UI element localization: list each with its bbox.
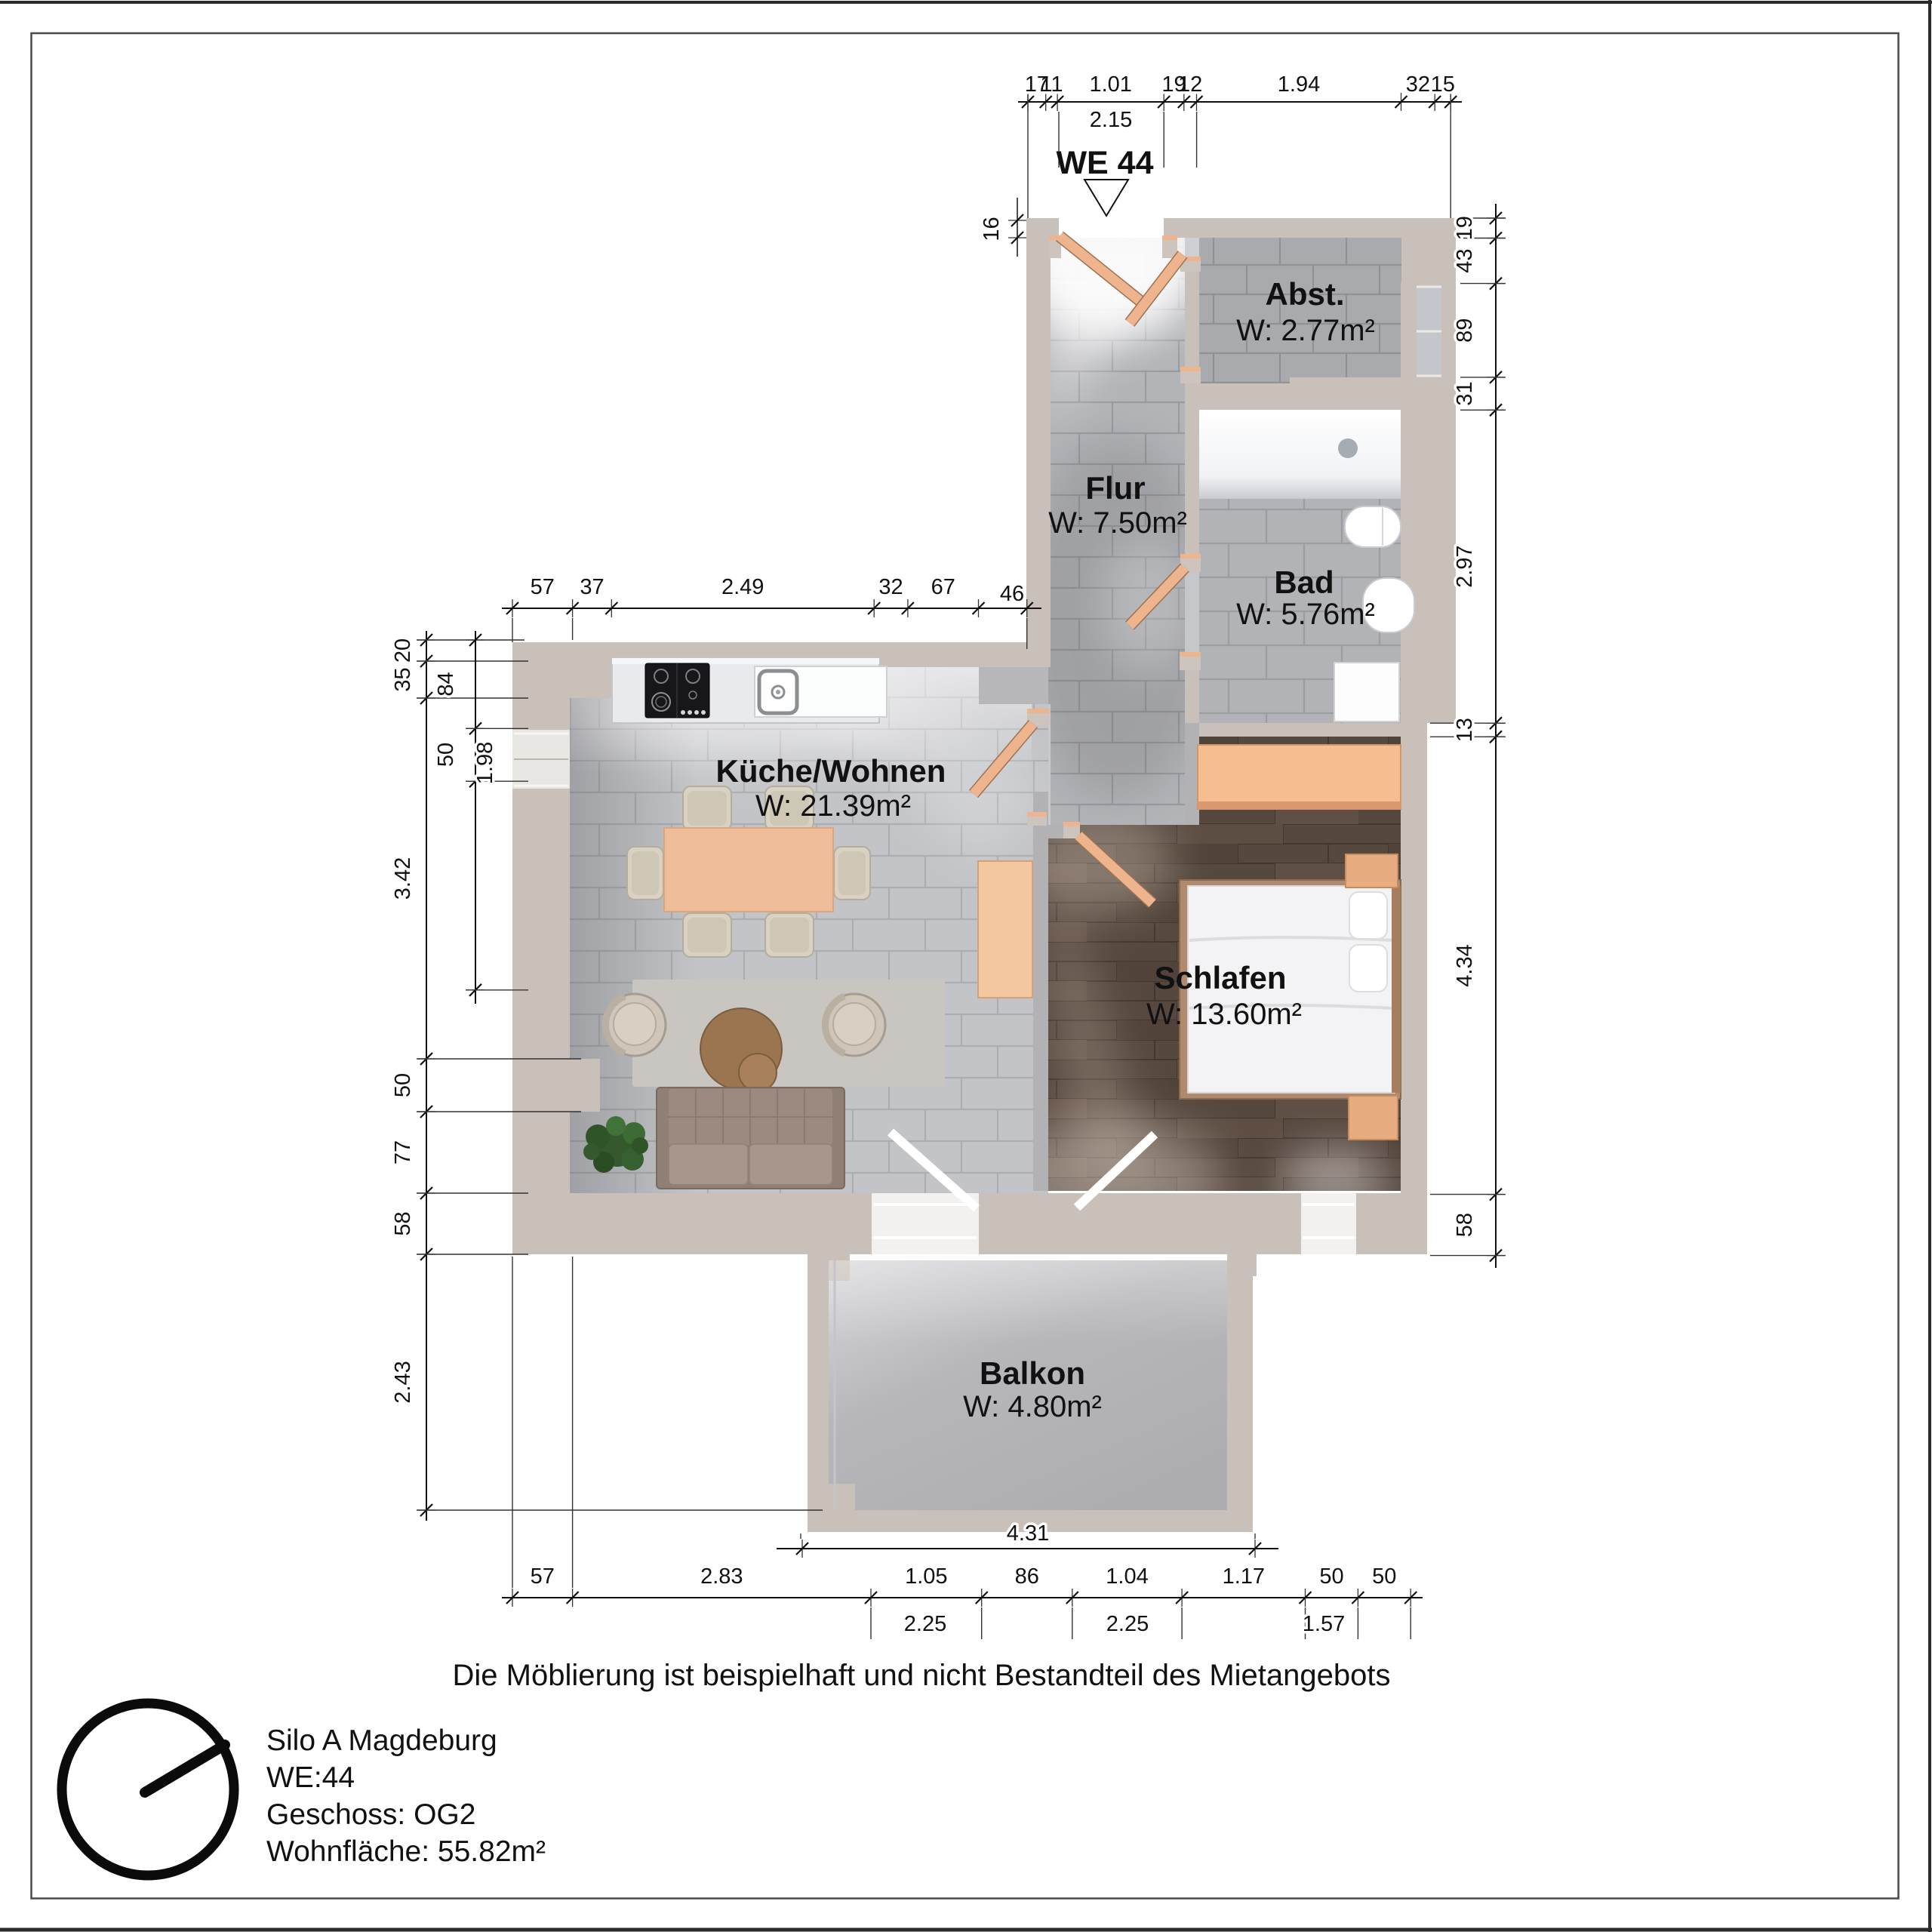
svg-text:2.43: 2.43	[391, 1361, 415, 1403]
svg-text:W: 2.77m²: W: 2.77m²	[1236, 314, 1375, 347]
svg-text:W: 21.39m²: W: 21.39m²	[755, 789, 911, 823]
svg-text:16: 16	[980, 217, 1004, 241]
svg-text:4.31: 4.31	[1007, 1521, 1049, 1546]
svg-text:67: 67	[931, 575, 955, 599]
svg-text:3.42: 3.42	[391, 857, 415, 900]
svg-text:W: 7.50m²: W: 7.50m²	[1048, 506, 1187, 540]
svg-text:86: 86	[1015, 1564, 1039, 1589]
svg-text:Wohnfläche: 55.82m²: Wohnfläche: 55.82m²	[266, 1835, 546, 1868]
svg-text:Abst.: Abst.	[1266, 276, 1345, 312]
svg-text:58: 58	[1453, 1213, 1477, 1237]
svg-text:1.98: 1.98	[473, 742, 497, 784]
svg-text:1.04: 1.04	[1106, 1564, 1148, 1589]
svg-text:84: 84	[434, 672, 458, 696]
svg-text:Schlafen: Schlafen	[1154, 960, 1286, 995]
svg-text:19: 19	[1453, 216, 1477, 240]
svg-text:WE:44: WE:44	[266, 1761, 355, 1794]
svg-text:1.17: 1.17	[1223, 1564, 1265, 1589]
svg-text:Silo A Magdeburg: Silo A Magdeburg	[266, 1724, 497, 1757]
svg-text:57: 57	[531, 575, 555, 599]
svg-text:W: 4.80m²: W: 4.80m²	[963, 1390, 1102, 1423]
svg-text:1.05: 1.05	[905, 1564, 947, 1589]
svg-text:Die Möblierung ist beispielhaf: Die Möblierung ist beispielhaft und nich…	[453, 1659, 1391, 1692]
svg-text:2.83: 2.83	[700, 1564, 743, 1589]
svg-text:43: 43	[1453, 248, 1477, 272]
svg-text:W: 13.60m²: W: 13.60m²	[1146, 998, 1302, 1031]
svg-text:1.01: 1.01	[1089, 72, 1131, 97]
svg-text:57: 57	[531, 1564, 555, 1589]
svg-text:Küche/Wohnen: Küche/Wohnen	[716, 753, 946, 789]
svg-text:15: 15	[1431, 72, 1455, 97]
svg-text:50: 50	[434, 743, 458, 767]
svg-text:12: 12	[1178, 72, 1202, 97]
svg-text:35: 35	[391, 667, 415, 691]
svg-text:2.25: 2.25	[904, 1612, 946, 1636]
svg-text:W: 5.76m²: W: 5.76m²	[1236, 598, 1375, 631]
svg-text:2.49: 2.49	[721, 575, 764, 599]
svg-text:11: 11	[1040, 72, 1063, 97]
svg-text:13: 13	[1453, 718, 1477, 742]
svg-text:32: 32	[878, 575, 903, 599]
svg-text:50: 50	[1319, 1564, 1343, 1589]
svg-text:Balkon: Balkon	[980, 1355, 1085, 1391]
svg-text:4.34: 4.34	[1453, 944, 1477, 986]
svg-text:50: 50	[1372, 1564, 1396, 1589]
svg-text:77: 77	[391, 1140, 415, 1164]
svg-text:1.94: 1.94	[1278, 72, 1320, 97]
svg-text:WE 44: WE 44	[1056, 145, 1153, 181]
svg-text:20: 20	[391, 638, 415, 663]
svg-text:Flur: Flur	[1085, 470, 1145, 506]
svg-text:46: 46	[1000, 582, 1024, 606]
svg-text:Bad: Bad	[1274, 565, 1334, 600]
svg-text:2.15: 2.15	[1090, 108, 1132, 132]
svg-text:58: 58	[391, 1211, 415, 1235]
svg-text:2.25: 2.25	[1106, 1612, 1149, 1636]
svg-text:89: 89	[1453, 318, 1477, 343]
svg-text:37: 37	[580, 575, 604, 599]
svg-text:1.57: 1.57	[1303, 1612, 1345, 1636]
svg-text:Geschoss: OG2: Geschoss: OG2	[266, 1798, 475, 1831]
svg-text:31: 31	[1453, 381, 1477, 405]
svg-text:2.97: 2.97	[1453, 545, 1477, 587]
svg-text:32: 32	[1406, 72, 1430, 97]
svg-text:50: 50	[391, 1073, 415, 1097]
